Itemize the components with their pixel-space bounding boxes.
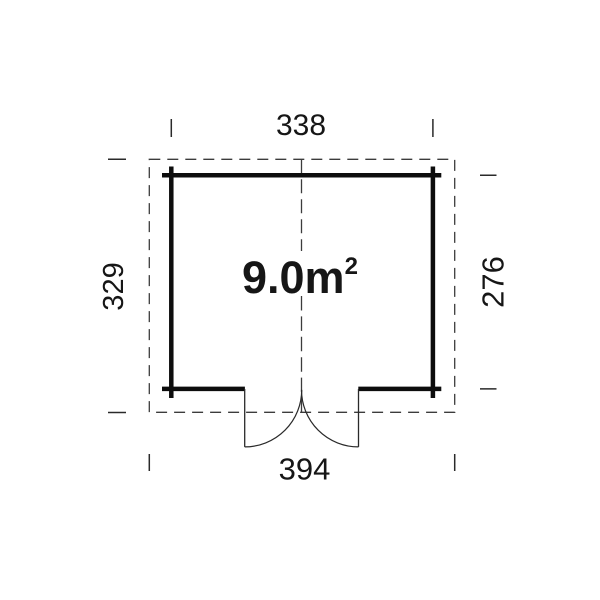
svg-text:329: 329 (98, 262, 130, 310)
svg-text:394: 394 (279, 452, 331, 487)
svg-text:9.0m2: 9.0m2 (242, 252, 358, 303)
svg-text:276: 276 (476, 256, 511, 308)
svg-text:338: 338 (276, 109, 326, 142)
